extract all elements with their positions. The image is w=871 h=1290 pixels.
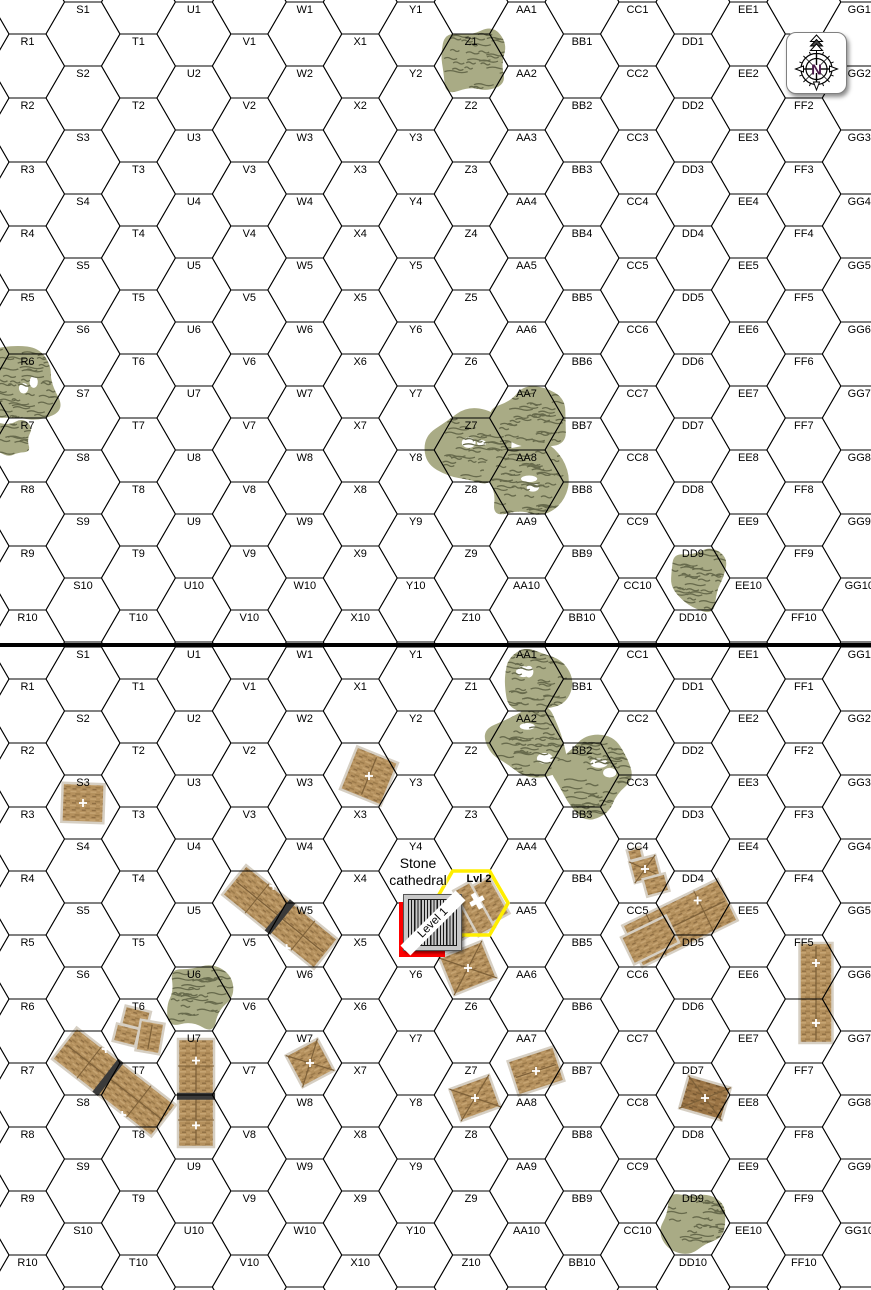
hex-label: R2: [20, 745, 34, 757]
hex[interactable]: [0, 1095, 9, 1159]
hex-label: U7: [187, 388, 201, 400]
hex-label: W5: [297, 905, 314, 917]
hex-label: T5: [132, 292, 145, 304]
hex-label: CC1: [626, 649, 648, 661]
hex-label: EE9: [738, 1161, 759, 1173]
hex-label: CC3: [626, 777, 648, 789]
hex-label: U2: [187, 68, 201, 80]
hex-label: AA6: [516, 969, 537, 981]
hex-label: FF3: [794, 809, 814, 821]
hex[interactable]: [0, 258, 9, 322]
hex-label: EE2: [738, 713, 759, 725]
hex[interactable]: [0, 578, 9, 642]
hex-label: Y6: [409, 969, 422, 981]
hex-label: AA3: [516, 132, 537, 144]
hex-label: Y4: [409, 841, 422, 853]
hex-label: FF10: [791, 612, 817, 624]
building: [449, 1075, 500, 1121]
hex-label: EE2: [738, 68, 759, 80]
hex-label: R7: [20, 420, 34, 432]
hex-label: U7: [187, 1033, 201, 1045]
hex-label: T2: [132, 100, 145, 112]
hex-label: AA10: [513, 580, 540, 592]
hex-label: S2: [76, 68, 89, 80]
hex-label: U1: [187, 4, 201, 16]
hex-label: BB8: [572, 1129, 593, 1141]
hex-label: GG8: [848, 1097, 871, 1109]
hex-label: W1: [297, 4, 314, 16]
hex-label: CC8: [626, 452, 648, 464]
hex-label: V8: [243, 1129, 256, 1141]
hex-label: BB10: [569, 1257, 596, 1269]
hex-label: X4: [353, 228, 366, 240]
hex-label: R1: [20, 36, 34, 48]
hex-label: R1: [20, 681, 34, 693]
hex-label: R10: [17, 612, 37, 624]
stone-cathedral-label: Stone cathedral: [371, 855, 465, 889]
hex[interactable]: [0, 711, 9, 775]
hex-label: X5: [353, 937, 366, 949]
hex-label: EE8: [738, 452, 759, 464]
hex-label: Z8: [465, 484, 478, 496]
hex-label: BB7: [572, 1065, 593, 1077]
hex-label: R9: [20, 1193, 34, 1205]
building: [340, 746, 398, 805]
hex-label: BB8: [572, 484, 593, 496]
hex-label: GG5: [848, 905, 871, 917]
hex-label: EE4: [738, 841, 759, 853]
hex-label: R4: [20, 228, 34, 240]
hex[interactable]: [656, 0, 730, 34]
hex-label: DD6: [682, 1001, 704, 1013]
building: [286, 1039, 335, 1088]
hex-label: U10: [184, 1225, 204, 1237]
hex-label: FF6: [794, 356, 814, 368]
hex-label: DD1: [682, 36, 704, 48]
hex[interactable]: [0, 194, 9, 258]
hex-label: R6: [20, 1001, 34, 1013]
hex-label: BB5: [572, 937, 593, 949]
hex-label: X10: [350, 1257, 370, 1269]
hex-label: Z8: [465, 1129, 478, 1141]
hex-label: FF2: [794, 100, 814, 112]
hex[interactable]: [0, 130, 9, 194]
hex-label: EE8: [738, 1097, 759, 1109]
hex[interactable]: [0, 66, 9, 130]
hex-label: T4: [132, 228, 145, 240]
hex-label: V10: [240, 1257, 260, 1269]
hex-label: Z3: [465, 164, 478, 176]
hex[interactable]: [0, 903, 9, 967]
hex-label: FF7: [794, 1065, 814, 1077]
hex[interactable]: [0, 2, 9, 66]
hex-label: V1: [243, 681, 256, 693]
hex-label: S10: [73, 1225, 93, 1237]
hex-label: Z10: [462, 612, 481, 624]
hex-label: R3: [20, 164, 34, 176]
hex-label: FF4: [794, 873, 814, 885]
hex-label: FF10: [791, 1257, 817, 1269]
hex-label: FF5: [794, 292, 814, 304]
hex-label: T1: [132, 681, 145, 693]
hex-label: T7: [132, 1065, 145, 1077]
hex-label: W9: [297, 1161, 314, 1173]
hex-label: EE1: [738, 4, 759, 16]
hex-label: S8: [76, 1097, 89, 1109]
hex-label: BB3: [572, 809, 593, 821]
hex-label: Z1: [465, 681, 478, 693]
hex-label: U9: [187, 1161, 201, 1173]
hex-label: GG4: [848, 196, 871, 208]
hex-label: CC2: [626, 713, 648, 725]
hex-label: GG4: [848, 841, 871, 853]
hex[interactable]: [545, 0, 619, 34]
woods-terrain: [0, 346, 70, 420]
hex-label: EE7: [738, 1033, 759, 1045]
hex-label: T5: [132, 937, 145, 949]
hex-label: Z6: [465, 356, 478, 368]
building: [800, 943, 833, 1043]
hex-label: DD1: [682, 681, 704, 693]
hex-label: GG10: [845, 580, 871, 592]
hex-label: EE9: [738, 516, 759, 528]
hex-label: GG9: [848, 516, 871, 528]
hex-label: X9: [353, 548, 366, 560]
hex-label: X10: [350, 612, 370, 624]
hex-label: Y2: [409, 68, 422, 80]
hex-label: EE5: [738, 905, 759, 917]
hex-label: T2: [132, 745, 145, 757]
hex-label: FF3: [794, 164, 814, 176]
hex-label: FF8: [794, 1129, 814, 1141]
hex-label: U6: [187, 324, 201, 336]
hex-label: U2: [187, 713, 201, 725]
hex-label: X2: [353, 100, 366, 112]
hex-label: Z6: [465, 1001, 478, 1013]
hex-label: BB4: [572, 873, 593, 885]
hex-label: DD7: [682, 1065, 704, 1077]
hex-label: Y3: [409, 132, 422, 144]
building: [135, 1020, 164, 1055]
hex-label: GG8: [848, 452, 871, 464]
hex-label: AA6: [516, 324, 537, 336]
hex-label: U1: [187, 649, 201, 661]
hex-label: Z5: [465, 292, 478, 304]
hex-label: S9: [76, 516, 89, 528]
hex-label: DD9: [682, 1193, 704, 1205]
hex-label: Z2: [465, 100, 478, 112]
hex-label: X7: [353, 420, 366, 432]
hex-label: CC4: [626, 841, 648, 853]
hex-label: Z9: [465, 548, 478, 560]
hex[interactable]: [157, 583, 231, 647]
hex-label: X3: [353, 809, 366, 821]
hex[interactable]: [212, 0, 286, 34]
hex-label: EE6: [738, 969, 759, 981]
hex-label: CC1: [626, 4, 648, 16]
hex-label: T6: [132, 356, 145, 368]
hex-label: GG7: [848, 388, 871, 400]
hex-label: W10: [293, 580, 316, 592]
hex-label: V1: [243, 36, 256, 48]
hex-label: X4: [353, 873, 366, 885]
hex-label: W2: [297, 713, 314, 725]
hex-label: V3: [243, 164, 256, 176]
hex-label: EE1: [738, 649, 759, 661]
hex-map[interactable]: R1R2R3R4R5R6R7R8R9R10S1S2S3S4S5S6S7S8S9S…: [0, 0, 871, 1290]
hex[interactable]: [601, 583, 675, 647]
hex-label: S3: [76, 132, 89, 144]
hex-label: CC4: [626, 196, 648, 208]
hex-label: AA10: [513, 1225, 540, 1237]
level1-marker-counter[interactable]: Level 1: [403, 894, 462, 951]
hex-label: X1: [353, 681, 366, 693]
hex-label: AA7: [516, 388, 537, 400]
hex-label: T4: [132, 873, 145, 885]
hex-label: BB5: [572, 292, 593, 304]
hex[interactable]: [0, 1223, 9, 1287]
vasl-map-window: R1R2R3R4R5R6R7R8R9R10S1S2S3S4S5S6S7S8S9S…: [0, 0, 871, 1290]
hex[interactable]: [0, 1159, 9, 1223]
hex-label: W7: [297, 1033, 314, 1045]
hex[interactable]: [0, 514, 9, 578]
hex-label: V6: [243, 356, 256, 368]
hex-label: T7: [132, 420, 145, 432]
hex-label: Z1: [465, 36, 478, 48]
hex-label: W1: [297, 649, 314, 661]
hex[interactable]: [379, 583, 453, 647]
building: [177, 1039, 215, 1147]
hex[interactable]: [0, 839, 9, 903]
hex-label: T6: [132, 1001, 145, 1013]
hex-label: T10: [129, 612, 148, 624]
hex-label: GG9: [848, 1161, 871, 1173]
hex-label: EE3: [738, 777, 759, 789]
hex-label: GG3: [848, 132, 871, 144]
building: [113, 1023, 140, 1046]
hex-label: X8: [353, 1129, 366, 1141]
hex[interactable]: [434, 0, 508, 34]
hex[interactable]: [0, 647, 9, 711]
hex-label: CC6: [626, 969, 648, 981]
hex-label: FF8: [794, 484, 814, 496]
board-top: R1R2R3R4R5R6R7R8R9R10S1S2S3S4S5S6S7S8S9S…: [0, 0, 871, 706]
hex-label: AA7: [516, 1033, 537, 1045]
hex-label: W6: [297, 969, 314, 981]
hex-label: S4: [76, 196, 89, 208]
hex-label: S5: [76, 905, 89, 917]
hex-label: R6: [20, 356, 34, 368]
hex-label: DD5: [682, 292, 704, 304]
hex[interactable]: [0, 450, 9, 514]
hex-label: Y7: [409, 388, 422, 400]
hex-label: CC5: [626, 260, 648, 272]
hex-label: U8: [187, 452, 201, 464]
hex-label: AA8: [516, 1097, 537, 1109]
hex-label: R5: [20, 937, 34, 949]
hex-label: W4: [297, 841, 314, 853]
hex[interactable]: [0, 0, 9, 2]
hex-label: AA4: [516, 196, 537, 208]
hex-label: AA2: [516, 713, 537, 725]
hex[interactable]: [323, 0, 397, 34]
hex-label: R3: [20, 809, 34, 821]
hex-label: GG6: [848, 969, 871, 981]
hex-label: AA1: [516, 649, 537, 661]
hex-label: BB9: [572, 548, 593, 560]
hex-label: Z3: [465, 809, 478, 821]
hex-label: AA1: [516, 4, 537, 16]
hex-label: U4: [187, 196, 201, 208]
hex-label: CC10: [623, 580, 651, 592]
hex-label: U4: [187, 841, 201, 853]
hex[interactable]: [0, 642, 9, 706]
board-separator: [0, 643, 871, 647]
hex-label: BB1: [572, 36, 593, 48]
hex-label: R2: [20, 100, 34, 112]
hex-label: CC3: [626, 132, 648, 144]
hex-label: DD2: [682, 745, 704, 757]
woods-terrain: [666, 549, 745, 613]
hex-label: V2: [243, 100, 256, 112]
hex-label: W5: [297, 260, 314, 272]
hex[interactable]: [0, 967, 9, 1031]
hex-label: W6: [297, 324, 314, 336]
hex-label: GG1: [848, 649, 871, 661]
hex-label: Z7: [465, 1065, 478, 1077]
hex-label: AA5: [516, 905, 537, 917]
hex-label: FF2: [794, 745, 814, 757]
hex-label: S8: [76, 452, 89, 464]
hex-label: Y1: [409, 649, 422, 661]
stone-cathedral-line1: Stone: [371, 855, 465, 872]
hex-label: V3: [243, 809, 256, 821]
hex-label: V6: [243, 1001, 256, 1013]
hex-label: W2: [297, 68, 314, 80]
compass-rose: N: [786, 32, 847, 94]
hex-label: AA9: [516, 516, 537, 528]
hex-label: EE10: [735, 580, 762, 592]
hex-label: FF1: [794, 681, 814, 693]
hex[interactable]: [46, 583, 120, 647]
hex-label: V5: [243, 937, 256, 949]
hex-label: BB7: [572, 420, 593, 432]
hex-label: T9: [132, 548, 145, 560]
hex-label: R4: [20, 873, 34, 885]
hex[interactable]: [0, 1031, 9, 1095]
woods-terrain: [442, 29, 522, 95]
hex-label: BB2: [572, 745, 593, 757]
building: [508, 1046, 565, 1095]
hex-label: S1: [76, 649, 89, 661]
hex[interactable]: [490, 583, 564, 647]
hex-label: DD5: [682, 937, 704, 949]
hex-label: U10: [184, 580, 204, 592]
hex-label: CC9: [626, 516, 648, 528]
hex-label: EE3: [738, 132, 759, 144]
hex-label: R7: [20, 1065, 34, 1077]
hex-label: T3: [132, 809, 145, 821]
hex[interactable]: [767, 0, 841, 34]
hex-label: Y9: [409, 1161, 422, 1173]
hex-label: GG7: [848, 1033, 871, 1045]
hex-label: AA4: [516, 841, 537, 853]
hex-label: S2: [76, 713, 89, 725]
hex-label: S5: [76, 260, 89, 272]
hex-label: GG6: [848, 324, 871, 336]
hex-label: CC8: [626, 1097, 648, 1109]
hex-label: CC7: [626, 388, 648, 400]
hex[interactable]: [268, 583, 342, 647]
hex-label: FF7: [794, 420, 814, 432]
hex-label: S1: [76, 4, 89, 16]
hex-label: DD3: [682, 164, 704, 176]
hex-label: BB1: [572, 681, 593, 693]
hex-label: T8: [132, 1129, 145, 1141]
hex-label: V2: [243, 745, 256, 757]
hex-label: Y7: [409, 1033, 422, 1045]
hex-label: Z2: [465, 745, 478, 757]
hex[interactable]: [822, 583, 871, 647]
hex-label: V5: [243, 292, 256, 304]
hex-label: CC10: [623, 1225, 651, 1237]
hex-label: DD10: [679, 612, 707, 624]
hex-label: DD6: [682, 356, 704, 368]
hex-label: Y5: [409, 260, 422, 272]
hex-label: BB3: [572, 164, 593, 176]
hex-label: U5: [187, 905, 201, 917]
hex-label: BB6: [572, 1001, 593, 1013]
hex-label: S4: [76, 841, 89, 853]
hex-label: T3: [132, 164, 145, 176]
hex-label: W4: [297, 196, 314, 208]
hex-label: V7: [243, 420, 256, 432]
hex-label: CC2: [626, 68, 648, 80]
hex-label: W8: [297, 452, 314, 464]
hex-label: AA9: [516, 1161, 537, 1173]
hex-label: T10: [129, 1257, 148, 1269]
hex-label: W10: [293, 1225, 316, 1237]
hex[interactable]: [711, 583, 785, 647]
hex-label: AA3: [516, 777, 537, 789]
hex-label: X9: [353, 1193, 366, 1205]
hex-label: CC6: [626, 324, 648, 336]
hex-label: Y8: [409, 452, 422, 464]
hex-label: W7: [297, 388, 314, 400]
hex-label: Y2: [409, 713, 422, 725]
hex-label: T9: [132, 1193, 145, 1205]
hex[interactable]: [0, 0, 65, 34]
hex-label: Z9: [465, 1193, 478, 1205]
hex-label: X3: [353, 164, 366, 176]
hex-label: X8: [353, 484, 366, 496]
hex[interactable]: [0, 583, 9, 647]
hex-label: V7: [243, 1065, 256, 1077]
hex-label: X6: [353, 356, 366, 368]
hex-label: AA2: [516, 68, 537, 80]
hex-label: X1: [353, 36, 366, 48]
hex-label: T1: [132, 36, 145, 48]
hex[interactable]: [101, 0, 175, 34]
hex-label: Y4: [409, 196, 422, 208]
hex-label: DD7: [682, 420, 704, 432]
hex-label: X6: [353, 1001, 366, 1013]
hex-label: Y10: [406, 1225, 426, 1237]
hex-label: Y3: [409, 777, 422, 789]
hex-label: R9: [20, 548, 34, 560]
hex-label: BB4: [572, 228, 593, 240]
hex[interactable]: [0, 775, 9, 839]
